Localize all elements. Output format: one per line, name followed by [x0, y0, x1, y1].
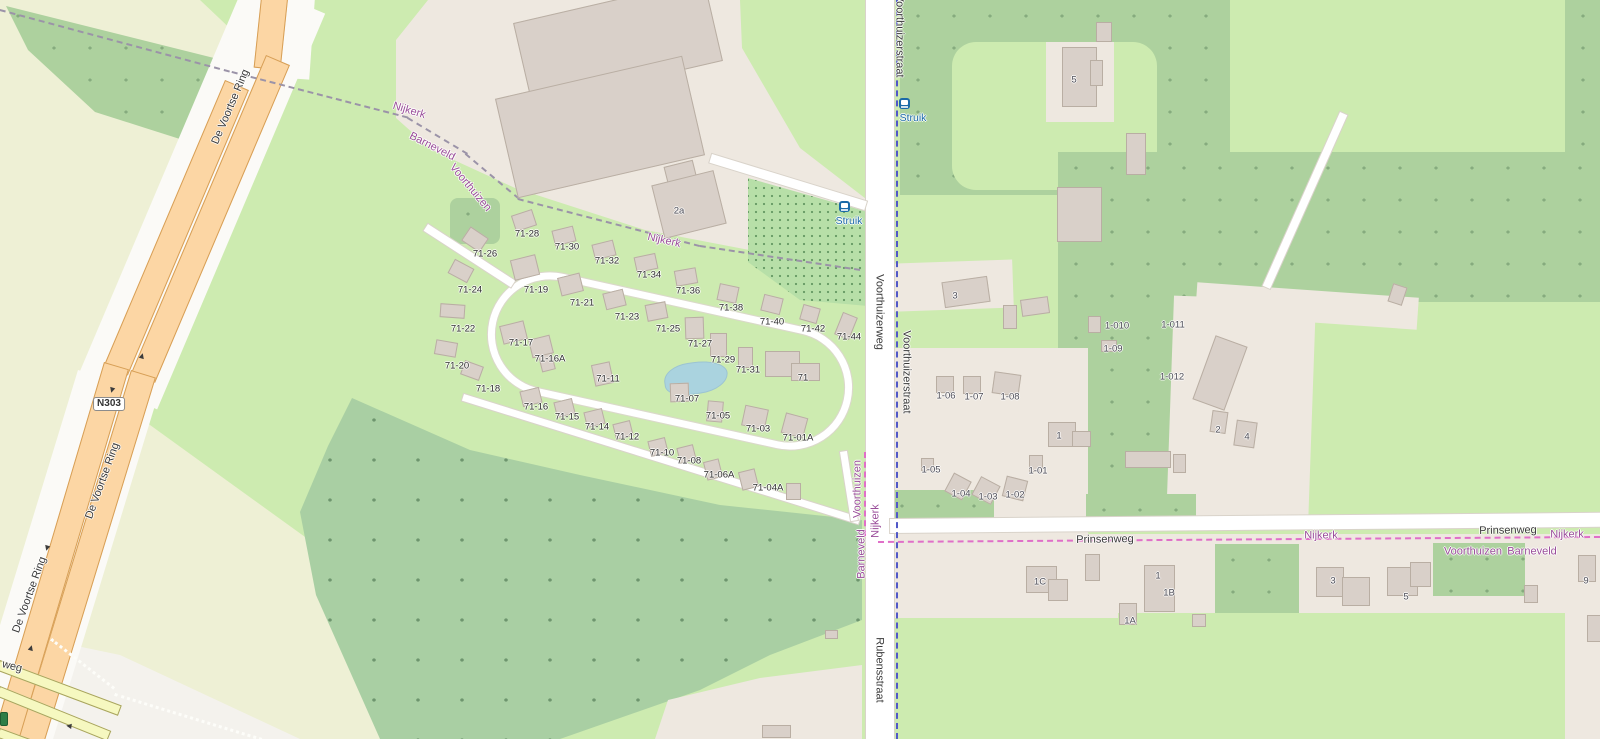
woodland-strip-far-ne — [1565, 0, 1600, 155]
building — [612, 420, 633, 440]
park-plot-number: 71-30 — [555, 242, 579, 252]
park-plot-number: 71-28 — [515, 229, 539, 239]
park-plot-number: 71-12 — [615, 432, 639, 442]
bus-stop-icon — [839, 201, 850, 212]
park-plot-number: 71-36 — [676, 286, 700, 296]
field-south-east — [1118, 613, 1565, 739]
building — [760, 294, 784, 315]
building — [716, 283, 739, 304]
house5-plot — [1046, 42, 1114, 122]
woodland-patch-park-nw — [450, 198, 500, 244]
woodland-patch-south-2 — [1433, 543, 1525, 596]
park-connector-road — [840, 451, 858, 521]
building — [591, 240, 616, 261]
building — [674, 267, 698, 287]
map-canvas[interactable]: De Voortse RingDe Voortse RingDe Voortse… — [0, 0, 1600, 739]
woodland-patch-south-1 — [1215, 544, 1299, 618]
building — [634, 253, 659, 273]
building — [1020, 296, 1050, 317]
building — [834, 312, 858, 340]
park-plot-number: 71-15 — [555, 412, 579, 422]
park-plot-number: 71-18 — [476, 384, 500, 394]
building — [460, 360, 484, 381]
bus-stop-label: Struik — [900, 112, 927, 124]
park-plot-number: 71-20 — [445, 361, 469, 371]
park-plot-number: 71-34 — [637, 270, 661, 280]
building — [551, 226, 576, 247]
park-plot-number: 71-44 — [837, 332, 861, 342]
building — [511, 209, 537, 232]
municipal-boundary-pink-vertical — [864, 452, 866, 536]
field-east — [1288, 302, 1600, 524]
building — [799, 304, 821, 324]
park-plot-number: 71-32 — [595, 256, 619, 266]
building — [1003, 305, 1017, 329]
park-plot-number: 71-16 — [524, 402, 548, 412]
park-plot-number: 71-22 — [451, 324, 475, 334]
building — [434, 339, 458, 358]
road-voorthuizerweg — [866, 0, 894, 739]
park-plot-number: 71-24 — [458, 285, 482, 295]
bus-stop-label: Struik — [836, 215, 863, 227]
building — [583, 408, 605, 428]
park-plot-number: 71-14 — [585, 422, 609, 432]
motorway-sign — [0, 712, 8, 726]
building — [448, 259, 475, 283]
bus-stop-icon — [899, 98, 910, 109]
building — [440, 303, 466, 319]
municipal-boundary-along-road — [896, 0, 898, 739]
